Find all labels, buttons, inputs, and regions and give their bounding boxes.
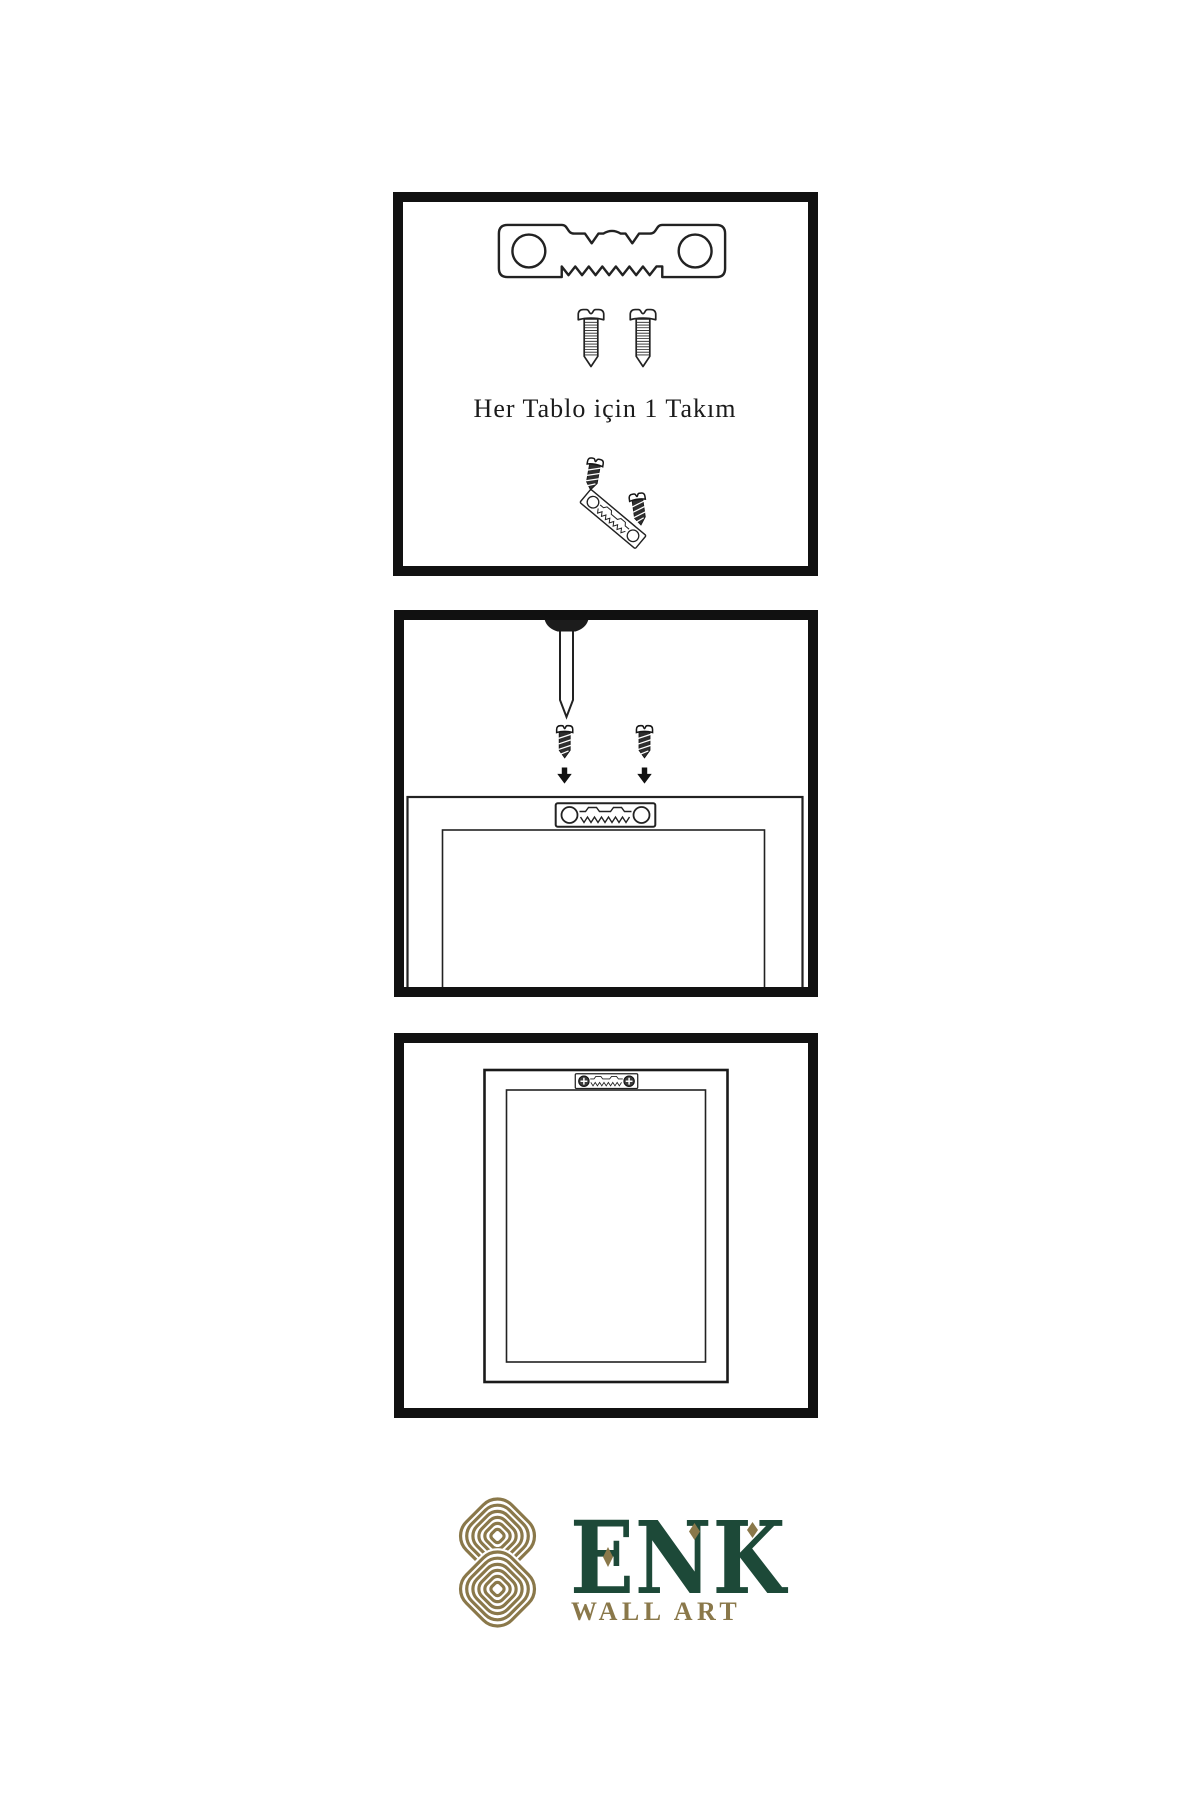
wall-nail-icon bbox=[545, 620, 589, 717]
knot-lower-loop bbox=[452, 1544, 543, 1635]
attach-hanger-illustration bbox=[404, 620, 808, 987]
down-arrow-icon bbox=[637, 768, 651, 784]
mounted-frame-illustration bbox=[404, 1043, 808, 1408]
phillips-screw-head-icon bbox=[624, 1076, 634, 1086]
screw-into-tilted-hanger-icon bbox=[580, 457, 649, 548]
sawtooth-hanger-icon bbox=[499, 225, 725, 277]
brand-wordmark: ENK bbox=[570, 1508, 786, 1608]
dark-screw-icon bbox=[629, 493, 649, 527]
hardware-kit-illustration bbox=[403, 202, 807, 566]
down-arrow-icon bbox=[557, 768, 571, 784]
frame-back-panel bbox=[443, 830, 765, 987]
knot-logo-icon bbox=[440, 1490, 555, 1635]
mounting-screw-icon bbox=[578, 310, 604, 367]
phillips-screw-head-icon bbox=[579, 1076, 589, 1086]
mounting-screw-icon bbox=[630, 310, 656, 367]
step-3-panel bbox=[394, 1033, 818, 1418]
dark-screw-icon bbox=[557, 726, 573, 758]
frame-back-panel bbox=[507, 1090, 706, 1362]
step-1-caption: Her Tablo için 1 Takım bbox=[403, 396, 807, 422]
sawtooth-hanger-icon bbox=[556, 803, 656, 827]
step-2-panel bbox=[394, 610, 818, 997]
dark-screw-icon bbox=[583, 457, 604, 491]
brand-subtitle: WALL ART bbox=[571, 1596, 741, 1627]
step-1-panel: Her Tablo için 1 Takım bbox=[393, 192, 818, 576]
dark-screw-icon bbox=[636, 726, 652, 758]
